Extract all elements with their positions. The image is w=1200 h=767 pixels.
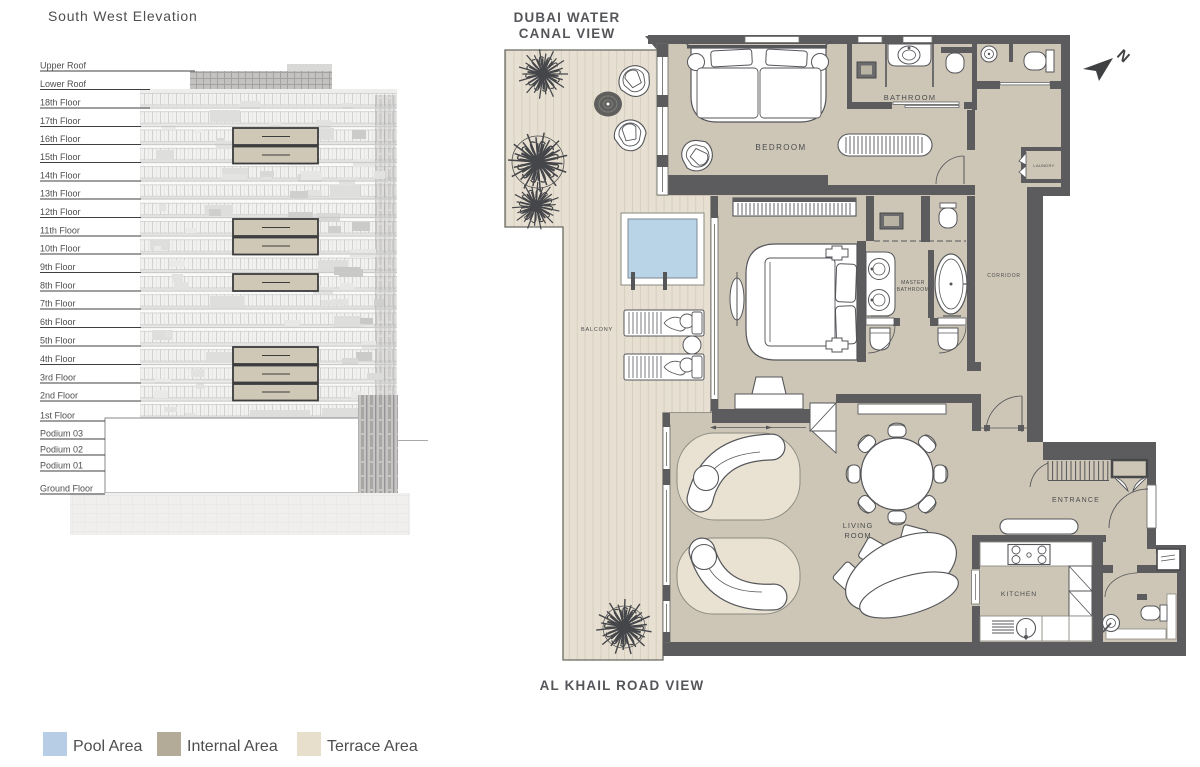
svg-text:KITCHEN: KITCHEN <box>1001 591 1037 598</box>
svg-text:Ground Floor: Ground Floor <box>40 484 93 494</box>
svg-text:CORRIDOR: CORRIDOR <box>987 273 1021 279</box>
svg-text:4th Floor: 4th Floor <box>40 354 76 364</box>
svg-text:10th Floor: 10th Floor <box>40 244 81 254</box>
svg-text:17th Floor: 17th Floor <box>40 116 81 126</box>
svg-text:8th Floor: 8th Floor <box>40 281 76 291</box>
svg-text:9th Floor: 9th Floor <box>40 262 76 272</box>
svg-text:3rd Floor: 3rd Floor <box>40 373 76 383</box>
svg-text:MASTER: MASTER <box>901 280 925 286</box>
svg-text:Pool Area: Pool Area <box>73 738 142 755</box>
svg-text:Podium 01: Podium 01 <box>40 461 83 471</box>
svg-text:ENTRANCE: ENTRANCE <box>1052 497 1100 504</box>
svg-text:2nd Floor: 2nd Floor <box>40 391 78 401</box>
svg-text:11th Floor: 11th Floor <box>40 226 80 236</box>
svg-text:Podium 03: Podium 03 <box>40 429 83 439</box>
svg-text:Podium 02: Podium 02 <box>40 445 83 455</box>
svg-text:7th Floor: 7th Floor <box>40 299 76 309</box>
svg-text:N: N <box>1113 46 1132 66</box>
svg-text:LIVING: LIVING <box>843 521 874 530</box>
svg-text:DUBAI WATER: DUBAI WATER <box>514 10 621 25</box>
svg-text:CANAL VIEW: CANAL VIEW <box>519 26 616 41</box>
svg-text:1st Floor: 1st Floor <box>40 411 75 421</box>
svg-text:15th Floor: 15th Floor <box>40 152 81 162</box>
svg-text:12th Floor: 12th Floor <box>40 207 81 217</box>
svg-text:BATHROOM: BATHROOM <box>884 93 936 102</box>
svg-text:6th Floor: 6th Floor <box>40 317 76 327</box>
svg-text:BALCONY: BALCONY <box>581 327 613 333</box>
svg-text:Lower Roof: Lower Roof <box>40 79 87 89</box>
svg-text:5th Floor: 5th Floor <box>40 336 76 346</box>
svg-text:16th Floor: 16th Floor <box>40 134 81 144</box>
svg-text:AL KHAIL ROAD VIEW: AL KHAIL ROAD VIEW <box>540 678 705 693</box>
svg-text:Upper Roof: Upper Roof <box>40 61 87 71</box>
svg-text:Terrace Area: Terrace Area <box>327 738 418 755</box>
svg-text:13th Floor: 13th Floor <box>40 189 81 199</box>
svg-text:14th Floor: 14th Floor <box>40 171 81 181</box>
svg-text:18th Floor: 18th Floor <box>40 98 81 108</box>
svg-text:South West Elevation: South West Elevation <box>48 8 198 24</box>
svg-text:BATHROOM: BATHROOM <box>897 287 930 293</box>
svg-text:BEDROOM: BEDROOM <box>755 143 806 152</box>
svg-text:LAUNDRY: LAUNDRY <box>1033 163 1054 168</box>
svg-text:Internal Area: Internal Area <box>187 738 278 755</box>
